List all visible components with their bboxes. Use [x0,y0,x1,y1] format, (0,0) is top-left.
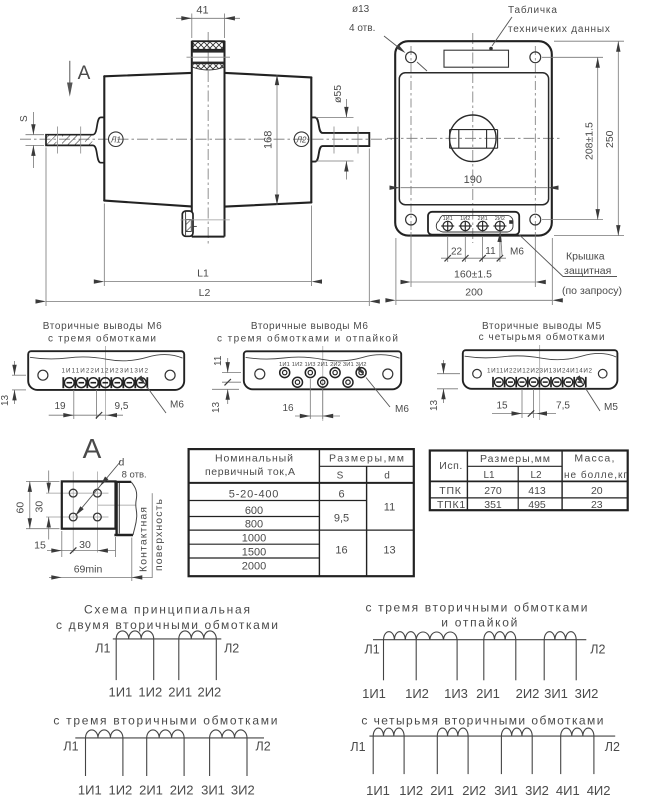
svg-text:1500: 1500 [242,547,266,559]
svg-text:3И1: 3И1 [494,783,518,798]
svg-text:200: 200 [465,287,483,299]
svg-text:М6: М6 [510,247,524,258]
svg-text:Масса,: Масса, [574,453,614,465]
svg-text:ø55: ø55 [332,85,344,103]
svg-text:Номинальный: Номинальный [215,453,293,465]
svg-text:3И2: 3И2 [525,783,549,798]
svg-text:1И2: 1И2 [460,216,470,222]
svg-text:S: S [19,115,30,122]
svg-text:15: 15 [34,540,46,552]
svg-text:160±1.5: 160±1.5 [454,269,492,281]
svg-text:208±1.5: 208±1.5 [584,122,596,160]
svg-text:1000: 1000 [242,533,266,545]
svg-text:13: 13 [0,394,11,406]
svg-text:защитная: защитная [564,265,611,277]
svg-text:5-20-400: 5-20-400 [229,489,279,501]
svg-text:190: 190 [464,174,482,186]
svg-text:11: 11 [485,246,496,257]
svg-text:600: 600 [245,505,263,517]
svg-text:250: 250 [604,130,616,148]
svg-text:20: 20 [591,485,603,497]
svg-text:Исп.: Исп. [439,460,462,472]
svg-text:Л1: Л1 [110,135,121,144]
svg-text:13: 13 [383,545,395,557]
svg-text:9,5: 9,5 [334,513,349,525]
svg-text:с двумя вторичными обмотками: с двумя вторичными обмотками [56,618,278,632]
svg-text:1И11И22И12И23И13И24И14И2: 1И11И22И12И23И13И24И14И2 [487,367,592,374]
svg-text:не болле,кг: не болле,кг [564,469,627,481]
svg-text:2И2: 2И2 [516,686,540,701]
svg-text:Крышка: Крышка [566,251,605,263]
svg-text:11: 11 [213,355,224,366]
svg-text:1И2: 1И2 [405,686,429,701]
svg-text:9,5: 9,5 [115,401,129,412]
svg-text:8 отв.: 8 отв. [122,469,147,480]
svg-text:Вторичные выводы М6: Вторичные выводы М6 [43,321,162,332]
svg-text:Л1: Л1 [365,643,380,657]
svg-text:с четырьмя обмотками: с четырьмя обмотками [479,331,605,343]
svg-text:и отпайкой: и отпайкой [441,616,517,630]
svg-text:16: 16 [335,545,347,557]
svg-text:413: 413 [528,485,546,497]
svg-text:Л1: Л1 [350,740,365,754]
svg-text:ø13: ø13 [352,4,370,15]
svg-text:69min: 69min [74,564,103,576]
svg-text:30: 30 [79,539,91,551]
svg-text:L2: L2 [530,470,542,481]
svg-text:L2: L2 [199,287,211,299]
svg-text:Л2: Л2 [590,643,605,657]
svg-text:13: 13 [429,399,440,411]
svg-text:4И2: 4И2 [587,783,611,798]
svg-text:1И1: 1И1 [366,783,390,798]
svg-text:22: 22 [451,247,463,258]
svg-text:7,5: 7,5 [556,401,570,412]
svg-text:М5: М5 [604,402,618,413]
svg-text:3И2: 3И2 [575,686,599,701]
svg-text:1И1 1И2 1И3 2И1 2И2 3И1 3И2: 1И1 1И2 1И3 2И1 2И2 3И1 3И2 [279,362,367,368]
svg-text:15: 15 [496,401,508,412]
svg-text:S: S [337,470,344,481]
svg-text:М6: М6 [395,404,409,415]
svg-text:800: 800 [245,518,263,530]
svg-text:2И2: 2И2 [495,216,505,222]
svg-text:13: 13 [211,401,222,413]
svg-text:270: 270 [484,485,502,497]
svg-text:1И2: 1И2 [108,783,132,798]
svg-text:Л2: Л2 [256,740,271,754]
svg-text:ТПК: ТПК [439,485,462,497]
svg-text:с тремя вторичными обмотками: с тремя вторичными обмотками [53,714,277,728]
svg-text:11: 11 [384,502,395,514]
svg-text:М6: М6 [170,400,184,411]
svg-text:Контактная: Контактная [138,507,150,572]
svg-text:1И3: 1И3 [444,686,468,701]
svg-text:60: 60 [15,502,27,514]
svg-text:2И2: 2И2 [170,783,194,798]
svg-text:Л2: Л2 [605,740,620,754]
svg-text:Л1: Л1 [63,740,78,754]
svg-text:Л2: Л2 [296,135,307,144]
svg-text:Табличка: Табличка [508,4,558,16]
svg-text:Размеры,мм: Размеры,мм [480,453,550,465]
svg-text:168: 168 [263,131,275,149]
svg-text:30: 30 [34,501,46,513]
svg-text:первичный ток,А: первичный ток,А [205,466,295,478]
svg-text:d: d [384,470,390,481]
svg-text:2И1: 2И1 [168,685,192,700]
svg-text:3И1: 3И1 [544,686,568,701]
svg-text:2И2: 2И2 [197,685,221,700]
svg-text:Размеры,мм: Размеры,мм [329,453,404,465]
svg-text:Л2: Л2 [224,641,239,655]
svg-text:2И1: 2И1 [139,783,163,798]
svg-text:351: 351 [484,499,502,511]
svg-text:2И1: 2И1 [430,783,454,798]
svg-text:1И1: 1И1 [443,216,453,222]
svg-text:41: 41 [196,4,208,16]
svg-text:23: 23 [591,499,603,511]
svg-text:поверхность: поверхность [153,498,165,571]
svg-text:L1: L1 [197,268,209,280]
svg-text:1И2: 1И2 [138,685,162,700]
svg-text:6: 6 [338,489,344,501]
svg-text:A: A [83,433,102,464]
svg-text:Вторичные выводы М6: Вторичные выводы М6 [251,321,368,332]
svg-text:2И1: 2И1 [476,686,500,701]
svg-text:1И2: 1И2 [399,783,423,798]
svg-text:с четырьмя вторичными обмоткам: с четырьмя вторичными обмотками [361,714,603,728]
svg-text:Л1: Л1 [95,641,110,655]
svg-text:A: A [78,63,91,84]
svg-text:техничеких данных: техничеких данных [508,24,611,35]
svg-text:2000: 2000 [242,561,266,573]
svg-text:(по запросу): (по запросу) [562,285,622,297]
svg-text:16: 16 [282,403,294,414]
svg-text:3И1: 3И1 [201,783,225,798]
svg-text:1И1: 1И1 [362,686,386,701]
svg-text:1И11И22И12И23И13И2: 1И11И22И12И23И13И2 [62,367,149,374]
svg-text:2И2: 2И2 [462,783,486,798]
svg-text:2И1: 2И1 [477,216,487,222]
svg-text:с тремя обмотками и отпайкой: с тремя обмотками и отпайкой [217,333,398,345]
svg-text:Схема принципиальная: Схема принципиальная [84,603,250,617]
svg-text:495: 495 [528,499,546,511]
svg-text:L1: L1 [483,470,495,481]
svg-text:с тремя обмотками: с тремя обмотками [48,333,156,345]
svg-text:4И1: 4И1 [556,783,580,798]
svg-text:1И1: 1И1 [108,685,132,700]
svg-text:1И1: 1И1 [78,783,102,798]
svg-text:ТПК1: ТПК1 [437,499,466,511]
svg-text:3И2: 3И2 [231,783,255,798]
svg-text:4 отв.: 4 отв. [349,23,375,34]
svg-text:с тремя вторичными обмотками: с тремя вторичными обмотками [366,601,588,615]
svg-text:19: 19 [54,401,66,412]
svg-text:Вторичные выводы М5: Вторичные выводы М5 [482,321,601,332]
